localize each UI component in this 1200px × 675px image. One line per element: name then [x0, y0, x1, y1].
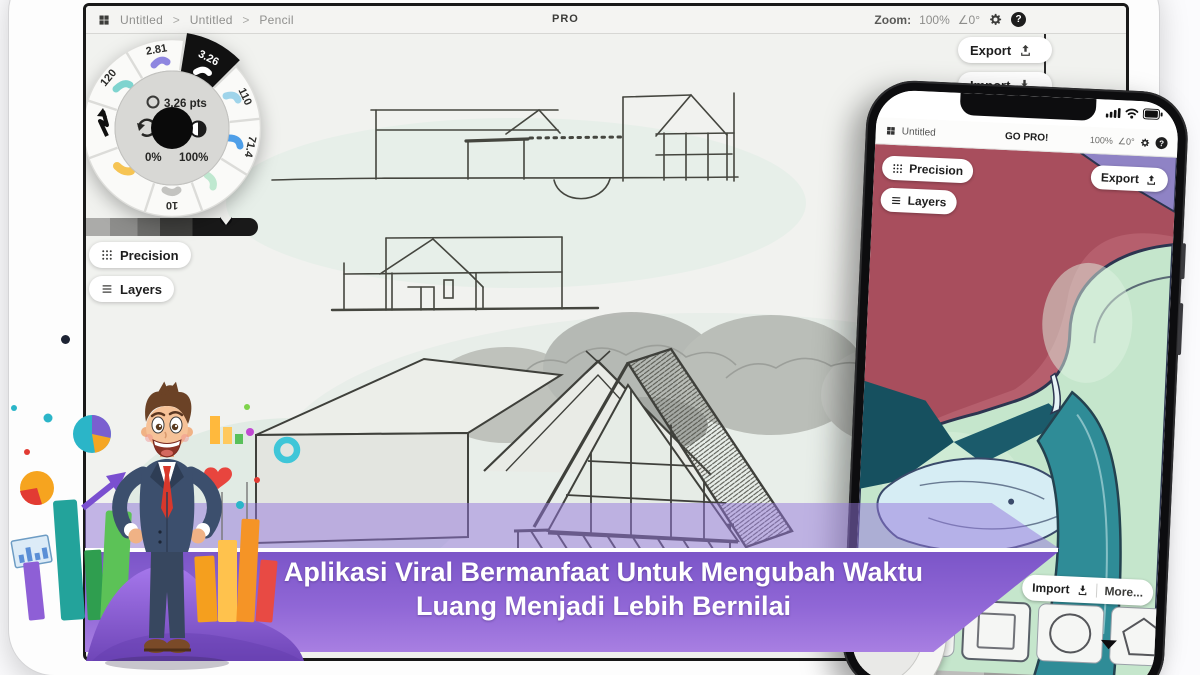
breadcrumb[interactable]: Untitled > Untitled > Pencil: [120, 13, 294, 27]
phone-export-button[interactable]: Export: [1090, 165, 1168, 192]
breadcrumb-project[interactable]: Untitled: [120, 13, 163, 27]
promo-graphic: Untitled > Untitled > Pencil PRO Zoom: 1…: [0, 0, 1200, 675]
svg-text:10: 10: [166, 199, 178, 211]
layers-label: Layers: [907, 194, 946, 210]
opacity-min: 0%: [145, 152, 162, 164]
upload-icon: [1145, 173, 1159, 187]
mascot-scene: [0, 380, 330, 675]
breadcrumb-separator: >: [173, 13, 180, 27]
phone-doc-title[interactable]: Untitled: [902, 126, 936, 139]
precision-grid-icon: [101, 249, 113, 261]
battery-icon: [1143, 108, 1163, 120]
layers-icon: [101, 283, 113, 295]
download-icon: [1076, 583, 1090, 597]
ring-icon: [277, 440, 297, 460]
divider: [1096, 584, 1098, 598]
phone-volume-button: [1177, 303, 1183, 355]
signal-icon: [1106, 107, 1121, 119]
zoom-value[interactable]: 100%: [919, 13, 950, 27]
upload-icon: [1018, 43, 1033, 58]
circle-shape-tile[interactable]: [1036, 603, 1105, 664]
phone-layers-button[interactable]: Layers: [880, 187, 957, 214]
export-button[interactable]: Export: [958, 37, 1052, 63]
layers-button[interactable]: Layers: [89, 276, 174, 302]
phone-power-button: [1180, 243, 1186, 279]
more-button[interactable]: More...: [1104, 584, 1143, 600]
precision-button[interactable]: Precision: [89, 242, 191, 268]
angle-value[interactable]: ∠0°: [958, 13, 980, 27]
phone-angle-value[interactable]: ∠0°: [1118, 136, 1135, 148]
current-color-well[interactable]: [151, 107, 193, 149]
precision-label: Precision: [120, 248, 179, 263]
phone-zoom-value[interactable]: 100%: [1090, 135, 1113, 146]
export-label: Export: [970, 43, 1011, 58]
mascot-ground-shadow: [105, 656, 229, 670]
breadcrumb-separator: >: [242, 13, 249, 27]
zoom-label: Zoom:: [874, 13, 911, 27]
settings-gear-icon[interactable]: [1139, 137, 1150, 148]
gallery-grid-icon[interactable]: [98, 14, 110, 26]
pro-badge[interactable]: PRO: [552, 13, 579, 25]
opacity-max: 100%: [179, 152, 208, 164]
wifi-icon: [1125, 107, 1139, 119]
precision-grid-icon: [892, 162, 903, 173]
layers-icon: [890, 194, 901, 205]
pie-chart-icon: [73, 415, 111, 453]
tray-collapse-chevron-icon[interactable]: [1101, 640, 1117, 650]
help-icon[interactable]: ?: [1155, 137, 1168, 150]
go-pro-button[interactable]: GO PRO!: [1005, 130, 1049, 143]
tablet-camera: [61, 335, 70, 344]
phone-precision-button[interactable]: Precision: [882, 155, 974, 183]
breadcrumb-drawing[interactable]: Untitled: [190, 13, 233, 27]
settings-gear-icon[interactable]: [988, 12, 1003, 27]
pentagon-shape-tile[interactable]: [1109, 606, 1178, 667]
help-icon[interactable]: ?: [1011, 12, 1026, 27]
precision-label: Precision: [909, 162, 964, 178]
pie-chart-icon-2: [20, 471, 54, 505]
layers-label: Layers: [120, 282, 162, 297]
import-label[interactable]: Import: [1032, 581, 1070, 597]
mini-bar-chart: [210, 416, 243, 444]
gallery-grid-icon[interactable]: [886, 126, 896, 136]
tool-wheel[interactable]: 120 2.81 3.26 110 71.4 10 3.26 pts: [83, 32, 268, 224]
breadcrumb-tool[interactable]: Pencil: [259, 13, 293, 27]
export-label: Export: [1101, 170, 1140, 186]
